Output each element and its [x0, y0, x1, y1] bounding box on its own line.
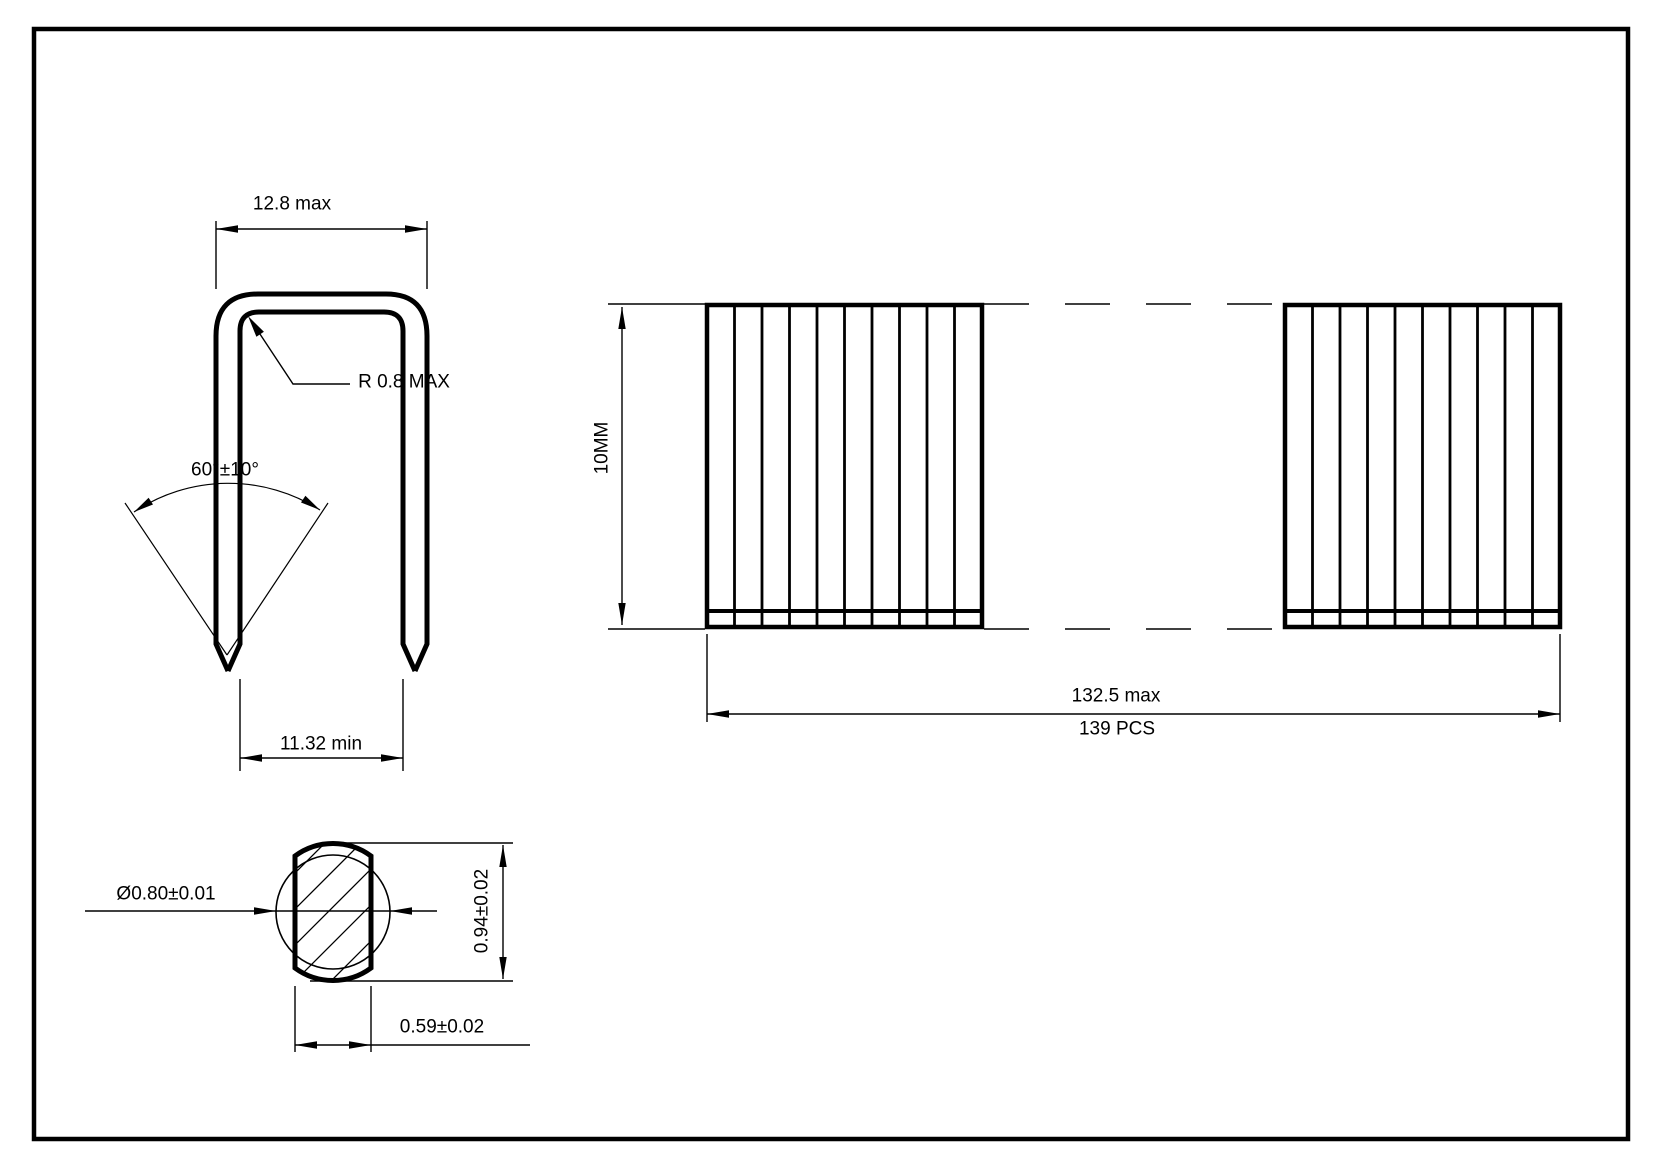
strip-break-lines [984, 304, 1283, 629]
dim-width-12-8 [216, 221, 427, 289]
label-corner-radius: R 0.8 MAX [358, 373, 450, 392]
label-wire-diameter: Ø0.80±0.01 [116, 885, 215, 904]
label-strip-length: 132.5 max [1072, 687, 1161, 706]
dim-strip-height [608, 304, 705, 629]
label-inner-width: 11.32 min [280, 735, 362, 754]
label-strip-height: 10MM [593, 422, 612, 475]
dim-point-angle [125, 483, 328, 655]
drawing-canvas [0, 0, 1659, 1173]
strip-right-block [1285, 305, 1560, 627]
strip-left-block [707, 305, 982, 627]
leader-corner-radius [248, 316, 350, 384]
label-staple-width: 12.8 max [253, 195, 331, 214]
label-piece-count: 139 PCS [1079, 720, 1155, 739]
staple-strip-view [608, 304, 1560, 722]
dim-wire-diameter [85, 907, 437, 914]
dim-strip-length [707, 634, 1560, 722]
label-section-height: 0.94±0.02 [473, 869, 492, 953]
dim-inner-width-11-32 [240, 679, 403, 771]
staple-front-view [125, 221, 427, 771]
drawing-sheet: 12.8 max R 0.8 MAX 60°±10° 11.32 min 10M… [0, 0, 1659, 1173]
label-section-width: 0.59±0.02 [400, 1018, 484, 1037]
label-point-angle: 60°±10° [191, 461, 259, 480]
